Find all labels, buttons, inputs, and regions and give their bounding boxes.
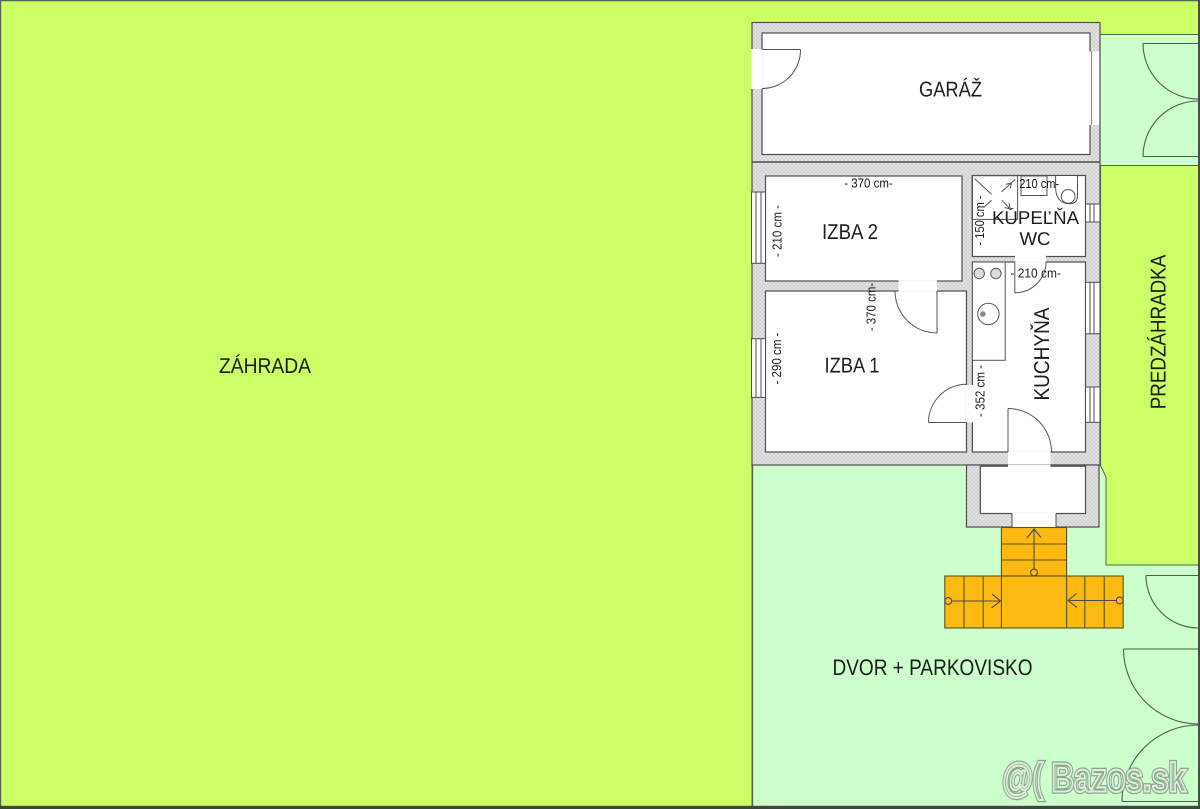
svg-text:- 210 cm-: - 210 cm-	[1010, 266, 1061, 281]
svg-text:IZBA 1: IZBA 1	[825, 354, 880, 378]
svg-text:DVOR + PARKOVISKO: DVOR + PARKOVISKO	[833, 655, 1033, 680]
svg-text:KUCHYŇA: KUCHYŇA	[1030, 307, 1054, 401]
svg-text:@( Bazos.sk: @( Bazos.sk	[1003, 755, 1187, 801]
svg-text:- 290 cm -: - 290 cm -	[769, 333, 784, 385]
svg-text:WC: WC	[1020, 228, 1051, 249]
svg-text:GARÁŽ: GARÁŽ	[919, 78, 982, 102]
svg-text:- 150 cm -: - 150 cm -	[972, 196, 987, 246]
svg-text:- 370 cm-: - 370 cm-	[864, 283, 879, 332]
svg-text:ZÁHRADA: ZÁHRADA	[219, 354, 312, 378]
svg-text:- 352 cm -: - 352 cm -	[973, 365, 988, 417]
svg-text:210 cm-: 210 cm-	[1019, 176, 1059, 191]
svg-text:KÚPEĽŇA: KÚPEĽŇA	[992, 207, 1080, 228]
svg-text:- 210 cm -: - 210 cm -	[770, 205, 785, 257]
svg-text:PREDZÁHRADKA: PREDZÁHRADKA	[1147, 254, 1171, 409]
svg-text:IZBA 2: IZBA 2	[822, 220, 878, 244]
svg-text:- 370 cm-: - 370 cm-	[844, 176, 893, 191]
